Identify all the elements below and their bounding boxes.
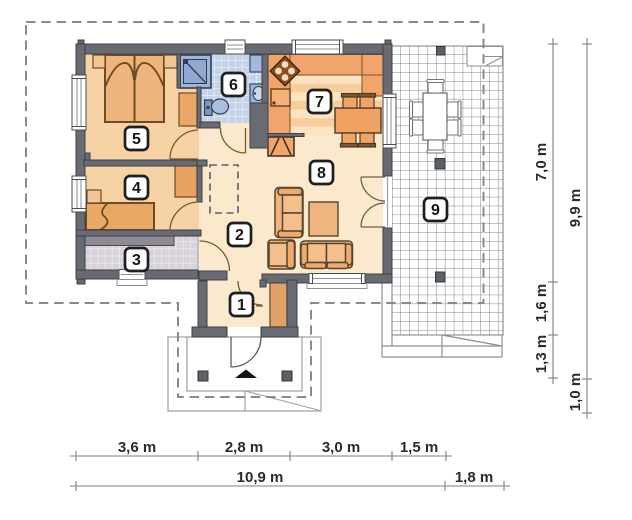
svg-text:2: 2	[235, 227, 244, 244]
svg-text:1: 1	[237, 297, 246, 314]
svg-text:3: 3	[132, 252, 141, 269]
svg-text:1,6 m: 1,6 m	[533, 284, 550, 322]
svg-text:10,9 m: 10,9 m	[237, 469, 284, 486]
svg-text:3,6 m: 3,6 m	[118, 439, 156, 456]
svg-text:1,0 m: 1,0 m	[567, 373, 584, 411]
svg-text:1,8 m: 1,8 m	[455, 469, 493, 486]
svg-text:7: 7	[315, 94, 324, 111]
svg-text:9: 9	[431, 202, 440, 219]
svg-text:6: 6	[229, 77, 238, 94]
svg-text:2,8 m: 2,8 m	[225, 439, 263, 456]
svg-text:9,9 m: 9,9 m	[567, 189, 584, 227]
svg-text:7,0 m: 7,0 m	[533, 143, 550, 181]
svg-text:4: 4	[132, 180, 141, 197]
svg-text:8: 8	[317, 165, 326, 182]
svg-text:5: 5	[132, 131, 141, 148]
svg-text:3,0 m: 3,0 m	[322, 439, 360, 456]
svg-text:1,3 m: 1,3 m	[533, 335, 550, 373]
svg-text:1,5 m: 1,5 m	[400, 439, 438, 456]
